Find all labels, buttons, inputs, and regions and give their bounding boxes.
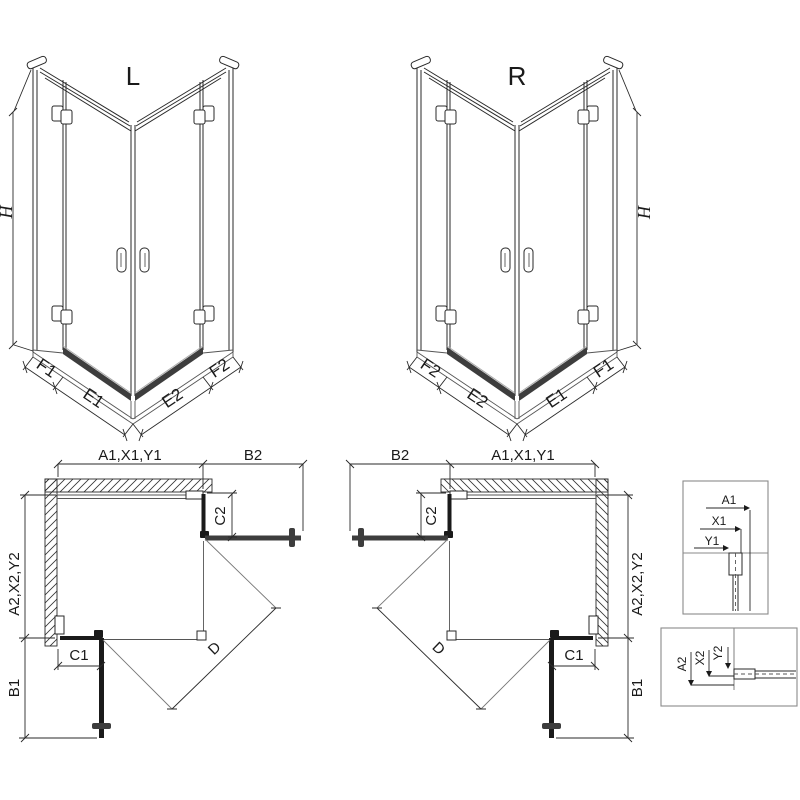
- dim-label-height-right: H: [634, 205, 654, 220]
- dim-label-c2-plan-right: C2: [423, 506, 440, 525]
- dim-label-f2-right: F2: [417, 355, 444, 382]
- shower-enclosure-dimension-diagram: L H F1 E1 E2 F2 R H F2 E2 E1 F1 A1,X1,Y1…: [0, 0, 800, 800]
- detail-label-a1: A1: [722, 493, 737, 507]
- dim-label-b1-plan-left: B1: [6, 679, 23, 697]
- plan-right-view: [346, 460, 634, 742]
- glass-section: [755, 671, 796, 678]
- plan-left-view: [19, 460, 307, 742]
- dim-label-f2-left: F2: [206, 355, 233, 382]
- perspective-left-view: [9, 55, 243, 441]
- detail-label-x2: X2: [693, 650, 707, 665]
- dim-label-width-plan-right: A1,X1,Y1: [491, 447, 554, 464]
- dim-label-width-plan-left: A1,X1,Y1: [98, 447, 161, 464]
- perspective-right-view: [407, 55, 641, 441]
- dim-label-b2-plan-left: B2: [244, 447, 262, 464]
- dim-label-e1-left: E1: [80, 384, 108, 411]
- detail-label-y2: Y2: [711, 645, 725, 660]
- dim-label-d-plan-right: D: [429, 639, 449, 659]
- view-title-right: R: [508, 61, 527, 91]
- view-title-left: L: [126, 61, 140, 91]
- dim-label-c1-plan-left: C1: [69, 647, 88, 664]
- dim-label-d-plan-left: D: [205, 639, 225, 659]
- dim-label-f1-right: F1: [590, 355, 617, 382]
- dim-label-b1-plan-right: B1: [629, 679, 646, 697]
- dim-label-e2-right: E2: [464, 384, 492, 411]
- detail-label-a2: A2: [675, 656, 689, 671]
- detail-label-x1: X1: [712, 514, 727, 528]
- detail-label-y1: Y1: [705, 534, 720, 548]
- dim-label-depth-plan-right: A2,X2,Y2: [629, 552, 646, 615]
- dim-label-e2-left: E2: [158, 384, 186, 411]
- diagram-svg: L H F1 E1 E2 F2 R H F2 E2 E1 F1 A1,X1,Y1…: [0, 0, 800, 800]
- dim-label-f1-left: F1: [33, 355, 60, 382]
- dim-label-e1-right: E1: [542, 384, 570, 411]
- dim-label-b2-plan-right: B2: [391, 447, 409, 464]
- dim-label-height-left: H: [0, 205, 16, 220]
- dim-label-depth-plan-left: A2,X2,Y2: [6, 552, 23, 615]
- dim-label-c2-plan-left: C2: [212, 506, 229, 525]
- dim-label-c1-plan-right: C1: [564, 647, 583, 664]
